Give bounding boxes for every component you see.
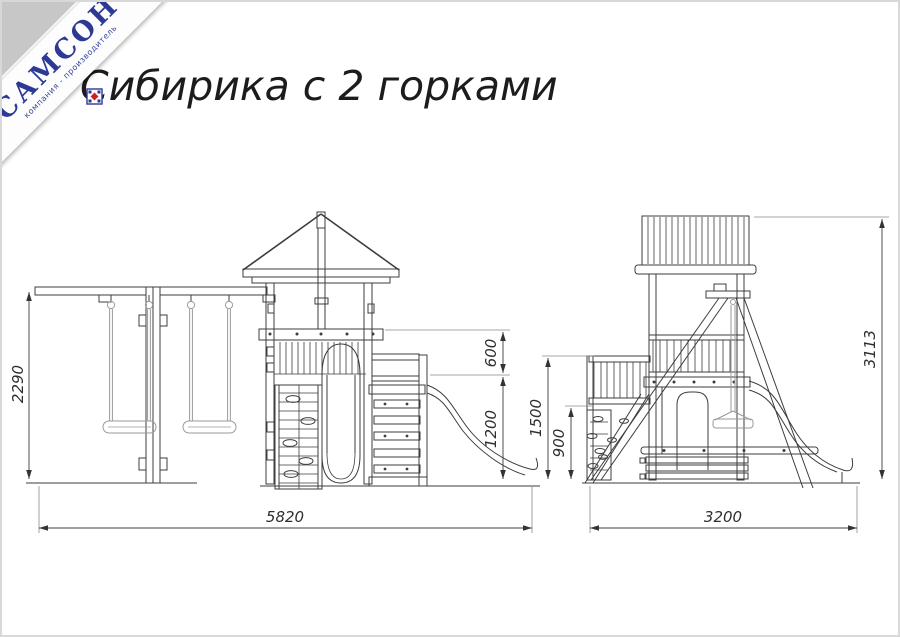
swings: [103, 295, 236, 433]
side-view: [582, 216, 860, 488]
climbing-wall-front: [267, 385, 322, 489]
samson-logo: САМСОН компания - производитель: [2, 2, 177, 177]
dim-side-overall-height: 3113: [861, 330, 879, 368]
samson-emblem-icon: [86, 88, 103, 105]
swing-side: [713, 300, 753, 429]
stairs-front: [369, 354, 427, 486]
dim-front-overall-height: 2290: [9, 365, 27, 403]
dim-front-overall-width: 5820: [266, 508, 304, 526]
product-drawing-page: САМСОН компания - производитель Сибирика…: [0, 0, 900, 637]
tower-side: [635, 216, 756, 480]
dim-side-deck-height: 1500: [527, 399, 545, 437]
front-view: [26, 212, 540, 489]
dim-front-slide-platform-height: 1200: [482, 410, 500, 448]
tower-front: [243, 212, 399, 484]
slide-side: [749, 381, 853, 483]
dim-side-overall-width: 3200: [704, 508, 742, 526]
dim-front-rail-height: 600: [482, 339, 500, 368]
balcony-side: [585, 356, 650, 483]
dim-side-wall-height: 900: [550, 429, 568, 458]
